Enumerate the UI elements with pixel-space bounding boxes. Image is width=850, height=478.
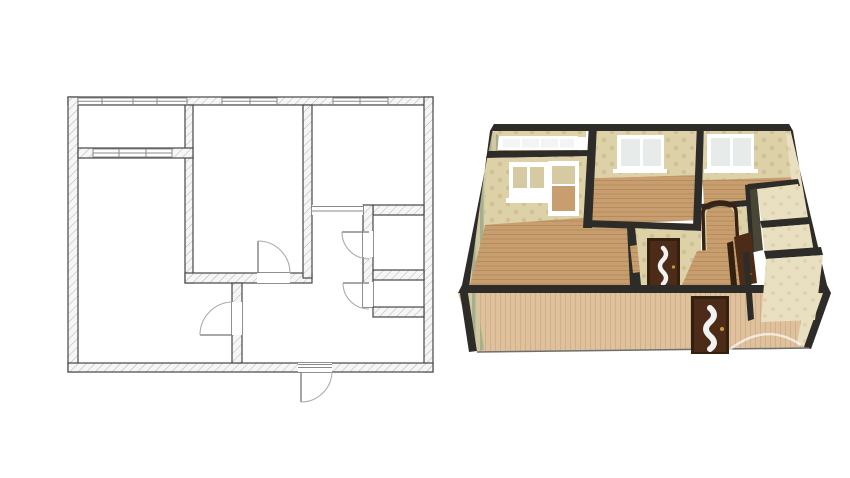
- floorplan-page: [0, 0, 850, 478]
- living-room-door-symbol: [200, 302, 242, 335]
- floorplan-figure: [0, 0, 850, 478]
- entry-door-3d: [691, 296, 729, 354]
- toilet-door-symbol: [342, 231, 373, 259]
- floor-plan-3d-render: [458, 124, 831, 354]
- entry-door-symbol: [298, 363, 332, 402]
- balcony-partition-window: [93, 149, 172, 157]
- door-symbols: [200, 231, 373, 402]
- floor-plan-2d: [68, 97, 433, 402]
- bathroom-door-symbol: [343, 282, 373, 309]
- kitchen-arch-opening-symbol: [312, 205, 363, 215]
- bedroom-floor: [588, 175, 701, 225]
- bedroom-window: [613, 135, 667, 173]
- bedroom-door-3d: [647, 238, 680, 287]
- window-symbols: [78, 98, 388, 215]
- bedroom-window-symbol: [222, 98, 277, 105]
- exterior-walls: [68, 97, 433, 372]
- balcony-window-band: [78, 98, 187, 105]
- balcony-3d: [484, 130, 598, 225]
- bedroom-door-symbol: [257, 241, 290, 283]
- kitchen-window-symbol: [333, 98, 388, 105]
- kitchen-window: [704, 134, 758, 173]
- balcony-glazing: [498, 136, 578, 150]
